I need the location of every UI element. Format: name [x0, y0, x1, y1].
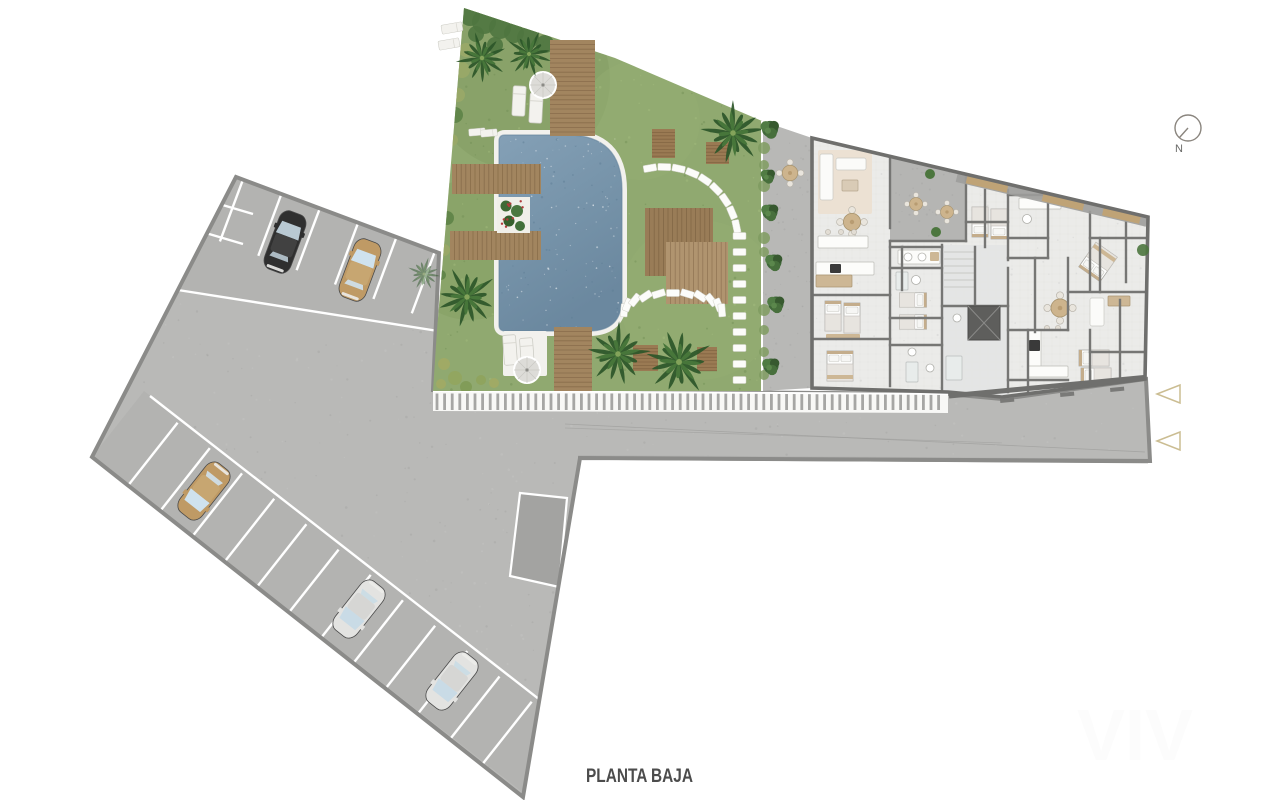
svg-text:PLANTA BAJA: PLANTA BAJA [586, 765, 693, 787]
svg-text:VIV: VIV [1077, 696, 1193, 776]
svg-text:N: N [1175, 143, 1183, 155]
